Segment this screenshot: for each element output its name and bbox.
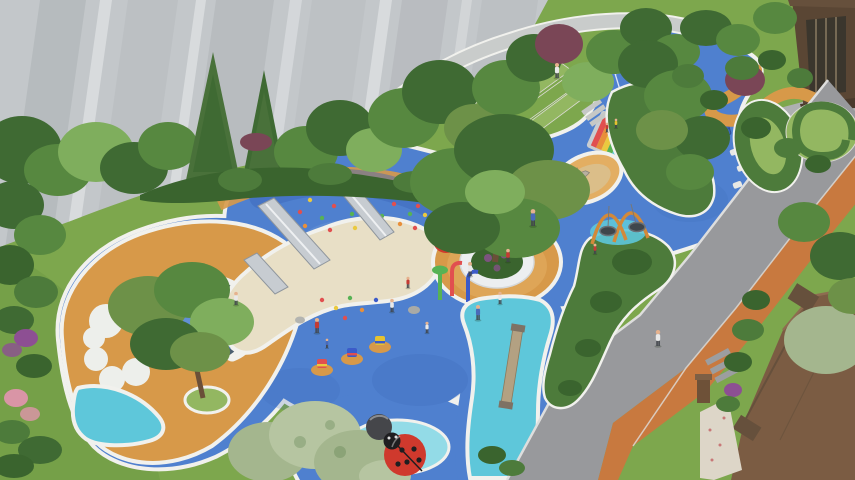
- playground-render: [0, 0, 855, 480]
- purple-flower-bush: [724, 383, 742, 397]
- pink-flower-bush: [4, 389, 28, 407]
- gate-pillar: [695, 374, 712, 403]
- purple-tree: [535, 24, 583, 64]
- tree-grass-circle: [185, 387, 229, 413]
- scene-canvas: [0, 0, 855, 480]
